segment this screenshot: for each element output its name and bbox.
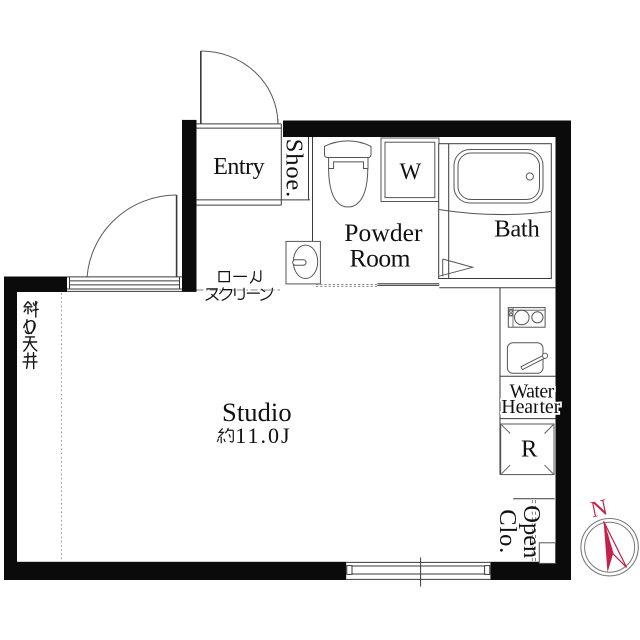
svg-text:Room: Room <box>350 244 411 273</box>
svg-text:Shoe.: Shoe. <box>280 139 307 198</box>
svg-text:11.0J: 11.0J <box>235 423 290 448</box>
svg-text:Entry: Entry <box>213 154 264 180</box>
svg-text:W: W <box>399 159 421 184</box>
svg-text:Clo.: Clo. <box>494 509 521 553</box>
svg-text:Bath: Bath <box>494 215 539 242</box>
svg-text:Hearter: Hearter <box>501 396 560 418</box>
svg-text:R: R <box>521 436 538 463</box>
